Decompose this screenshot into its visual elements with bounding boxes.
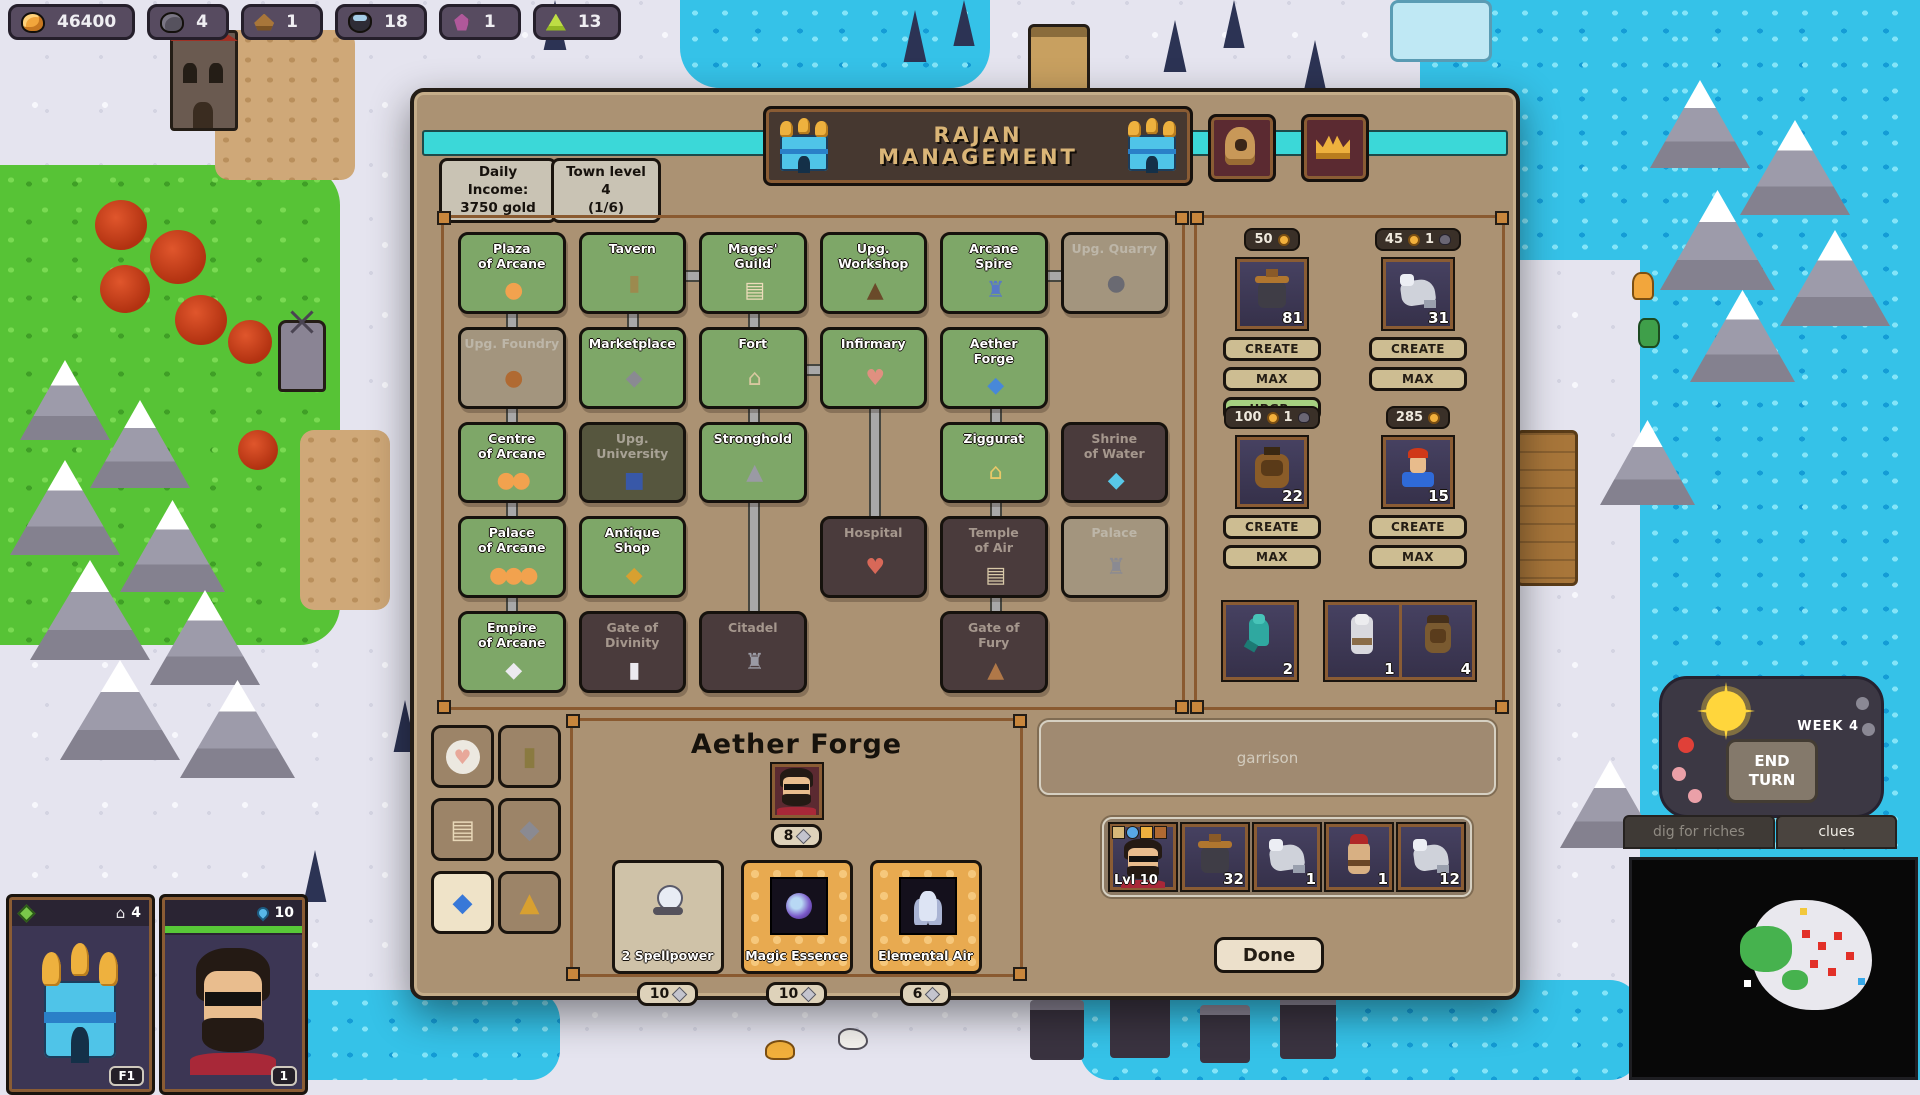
ziggurat-icon: ⌂ (989, 446, 999, 501)
hero-portrait (772, 764, 822, 818)
wood-icon (254, 14, 274, 31)
mages-guild-icon: ▤ (744, 271, 761, 311)
unit-portrait[interactable]: 81 (1235, 257, 1309, 331)
army-slot[interactable]: 1 (1252, 822, 1322, 892)
resource-mercury: 18 (335, 4, 427, 40)
building-detail-section: Aether Forge 8 2 Spellpower (570, 718, 1023, 977)
building-tile-palace-of-arcane[interactable]: Palace of Arcane ●●● (458, 516, 566, 598)
stronghold-icon: ▲ (746, 446, 759, 501)
hero-army-row: Lvl 10 32 1 1 12 (1102, 817, 1472, 897)
minimap-marker-yellow (1800, 908, 1807, 915)
building-tile-plaza-of-arcane[interactable]: Plaza of Arcane ● (458, 232, 566, 314)
minimap-grass (1740, 926, 1792, 972)
recruitment-section: 50 81 CREATE MAX UPGR. 45 1 31 CREATE MA… (1194, 215, 1505, 710)
gems-amount: 13 (578, 12, 602, 32)
magic-essence-icon (770, 877, 828, 935)
reserve-slot[interactable]: 1 (1325, 602, 1402, 680)
autumn-tree (238, 430, 278, 470)
town-count: 4 (131, 905, 141, 921)
building-tile-fort[interactable]: Fort ⌂ (699, 327, 807, 409)
mercury-amount: 18 (384, 12, 408, 32)
army-slot[interactable]: 12 (1396, 822, 1466, 892)
resource-bar: 46400 4 1 18 1 13 (8, 4, 621, 40)
building-tile-upg-quarry[interactable]: Upg. Quarry ● (1061, 232, 1169, 314)
town-portrait (37, 945, 123, 1065)
quarry-icon: ● (1107, 256, 1122, 311)
minimap-marker-blue (1858, 978, 1865, 985)
week-label: WEEK 4 (1797, 719, 1859, 734)
crystal-amount: 1 (484, 12, 496, 32)
ore-mini-icon (1439, 234, 1451, 245)
temple-of-air-icon: ▤ (985, 555, 1002, 595)
stone-tower (1028, 24, 1090, 98)
movement-bar (165, 926, 302, 935)
palace-icon: ♜ (1106, 540, 1122, 595)
building-tile-shrine-of-water[interactable]: Shrine of Water ◆ (1061, 422, 1169, 504)
ore-mini-icon (1298, 412, 1310, 423)
wood-amount: 1 (286, 12, 298, 32)
minimap-enemy-dot (1834, 932, 1842, 940)
building-tile-upg-foundry[interactable]: Upg. Foundry ● (458, 327, 566, 409)
forge-item-spellpower[interactable]: 2 Spellpower (612, 860, 724, 974)
village-house (1030, 1000, 1084, 1060)
plaza-of-arcane-icon: ● (504, 271, 519, 311)
recruit-card-wolf: 45 1 31 CREATE MAX (1359, 228, 1477, 391)
recruit-cost: 50 (1244, 228, 1299, 251)
empire-of-arcane-icon: ◆ (505, 650, 518, 690)
scales-icon: ◆ (520, 815, 540, 845)
village-house (1110, 990, 1170, 1058)
gem-icon (17, 904, 35, 922)
gold-pile (765, 1040, 795, 1060)
end-turn-button[interactable]: END TURN (1726, 739, 1818, 803)
building-tile-palace[interactable]: Palace ♜ (1061, 516, 1169, 598)
foundry-icon: ● (504, 351, 519, 406)
bandit-unit-icon (1249, 267, 1295, 313)
hero-level: Lvl 10 (1114, 873, 1158, 888)
chest-icon (1154, 826, 1167, 839)
building-tile-arcane-spire[interactable]: Arcane Spire ♜ (940, 232, 1048, 314)
golem-unit-icon (1249, 445, 1295, 491)
minimap-marker-white (1744, 980, 1751, 987)
hero-badge: 1 (271, 1066, 297, 1086)
building-tile-aether-forge[interactable]: Aether Forge ◆ (940, 327, 1048, 409)
building-tile-hospital[interactable]: Hospital ♥ (820, 516, 928, 598)
wolf-unit-icon (1395, 267, 1441, 313)
elemental-air-icon (899, 877, 957, 935)
tavern-button[interactable]: ▮ (498, 725, 561, 788)
fountain-icon: ◆ (453, 888, 473, 918)
building-tile-upg-workshop[interactable]: Upg. Workshop ▲ (820, 232, 928, 314)
building-tile-antique-shop[interactable]: Antique Shop ◆ (579, 516, 687, 598)
ore-amount: 4 (196, 12, 208, 32)
brute-unit-icon (1336, 832, 1382, 878)
minimap-enemy-dot (1828, 968, 1836, 976)
helmet-icon: ▲ (520, 888, 540, 918)
town-panel-header: ⌂ 4 (12, 900, 149, 926)
dialog-title-banner: RAJAN MANAGEMENT (763, 106, 1193, 186)
building-tile-upg-university[interactable]: Upg. University ■ (579, 422, 687, 504)
building-tile-mages-guild[interactable]: Mages' Guild ▤ (699, 232, 807, 314)
hospital-icon: ♥ (865, 540, 881, 595)
recruit-card-golem: 100 1 22 CREATE MAX (1213, 406, 1331, 569)
autumn-tree (228, 320, 272, 364)
village-house (1200, 1005, 1250, 1063)
npc-green (1638, 318, 1660, 348)
pine-tree (1220, 0, 1248, 48)
dial-dot (1862, 723, 1875, 736)
ore-icon (160, 12, 184, 33)
forge-item-magic-essence[interactable]: Magic Essence (741, 860, 853, 974)
hero-portrait (184, 945, 282, 1075)
autumn-tree (100, 265, 150, 313)
beast-unit-icon (1415, 612, 1461, 658)
garrison-panel: garrison (1039, 720, 1496, 795)
town-panel[interactable]: ⌂ 4 F1 (6, 894, 155, 1095)
reserve-slot[interactable]: 2 (1221, 600, 1299, 682)
mug-icon: ▮ (522, 742, 536, 772)
building-tile-ziggurat[interactable]: Ziggurat ⌂ (940, 422, 1048, 504)
building-tile-gate-of-divinity[interactable]: Gate of Divinity ▮ (579, 611, 687, 693)
day-dot-red (1678, 737, 1694, 753)
pine-tree (1160, 20, 1190, 72)
tavern-icon: ▮ (628, 256, 636, 311)
essence-icon (925, 986, 941, 1002)
book-icon: ▤ (450, 815, 475, 845)
hero-portrait-button[interactable] (1208, 114, 1276, 182)
pine-tree (1300, 40, 1330, 92)
essence-icon (801, 986, 817, 1002)
arcane-spire-icon: ♜ (986, 271, 1002, 311)
fort-icon: ⌂ (748, 351, 758, 406)
mages-guild-button[interactable]: ▤ (431, 798, 494, 861)
recruit-cost: 285 (1386, 406, 1450, 429)
done-button[interactable]: Done (1214, 937, 1324, 973)
infirmary-icon: ♥ (865, 351, 881, 406)
kingdom-crown-button[interactable] (1301, 114, 1369, 182)
infirmary-button[interactable]: ♥ (431, 725, 494, 788)
create-button[interactable]: CREATE (1369, 337, 1467, 361)
university-icon: ■ (624, 461, 641, 501)
village-house (1280, 995, 1336, 1059)
gold-coin-icon (1267, 412, 1279, 424)
dialog-title: RAJAN MANAGEMENT (832, 124, 1124, 168)
crystal-icon (452, 14, 472, 31)
gold-coin-icon (1278, 234, 1290, 246)
building-tile-temple-of-air[interactable]: Temple of Air ▤ (940, 516, 1048, 598)
building-grid-section: Plaza of Arcane ● Tavern ▮ Mages' Guild … (441, 215, 1185, 710)
recruit-cost: 45 1 (1375, 228, 1461, 251)
recruit-cost: 100 1 (1224, 406, 1319, 429)
shrine-of-water-icon: ◆ (1108, 461, 1121, 501)
town-management-dialog: RAJAN MANAGEMENT Daily Income: 3750 gold… (410, 88, 1520, 1000)
resource-wood: 1 (241, 4, 323, 40)
minimap[interactable] (1629, 857, 1918, 1080)
create-button[interactable]: CREATE (1223, 337, 1321, 361)
hero-cost-badge: 8 (771, 824, 823, 848)
autumn-tree (175, 295, 227, 345)
unit-portrait[interactable]: 22 (1235, 435, 1309, 509)
gate-of-divinity-icon: ▮ (628, 650, 636, 690)
essence-icon (796, 828, 812, 844)
minimap-grass (1782, 970, 1808, 990)
dock (1516, 430, 1578, 586)
dig-for-riches-button[interactable]: dig for riches (1623, 815, 1775, 849)
max-button[interactable]: MAX (1369, 545, 1467, 569)
minimap-enemy-dot (1818, 942, 1826, 950)
building-tile-centre-of-arcane[interactable]: Centre of Arcane ●● (458, 422, 566, 504)
crown-icon (1140, 826, 1153, 839)
lake-top (680, 0, 990, 88)
ice-ruin (1390, 0, 1492, 62)
building-tile-stronghold[interactable]: Stronghold ▲ (699, 422, 807, 504)
castle-icon (1124, 118, 1180, 174)
minimap-enemy-dot (1846, 952, 1854, 960)
item-cost-badge: 10 (766, 982, 827, 1006)
map-castle (170, 30, 238, 131)
goat (838, 1028, 868, 1050)
house-icon: ⌂ (116, 906, 126, 921)
dial-dot (1856, 697, 1869, 710)
workshop-icon: ▲ (867, 271, 880, 311)
mountain (180, 680, 295, 778)
building-tile-infirmary[interactable]: Infirmary ♥ (820, 327, 928, 409)
reserve-slot-pair[interactable]: 1 4 (1323, 600, 1477, 682)
marketplace-button[interactable]: ◆ (498, 798, 561, 861)
gold-coin-icon (1428, 412, 1440, 424)
hero-movement-count: 10 (275, 905, 294, 921)
army-slot[interactable]: 1 (1324, 822, 1394, 892)
reserve-slot[interactable]: 4 (1402, 602, 1476, 680)
spellpower-orb-icon (653, 885, 683, 915)
max-button[interactable]: MAX (1223, 545, 1321, 569)
gate-of-fury-icon: ▲ (987, 650, 1000, 690)
day-dot-pink (1688, 789, 1702, 803)
crown-icon (1316, 133, 1350, 159)
antique-shop-button[interactable]: ▲ (498, 871, 561, 934)
building-tile-marketplace[interactable]: Marketplace ◆ (579, 327, 687, 409)
item-cost-badge: 6 (900, 982, 952, 1006)
hero-panel[interactable]: 10 1 (159, 894, 308, 1095)
town-hotkey-badge: F1 (109, 1066, 144, 1086)
palace-of-arcane-icon: ●●● (489, 555, 535, 595)
army-hero-slot[interactable]: Lvl 10 (1108, 822, 1178, 892)
building-tile-empire-of-arcane[interactable]: Empire of Arcane ◆ (458, 611, 566, 693)
resource-gold: 46400 (8, 4, 135, 40)
turn-panel: WEEK 4 END TURN (1659, 676, 1884, 818)
resource-ore: 4 (147, 4, 229, 40)
unit-portrait[interactable]: 31 (1381, 257, 1455, 331)
garrison-label: garrison (1237, 749, 1298, 767)
essence-icon (672, 986, 688, 1002)
day-dot-pink (1672, 767, 1686, 781)
autumn-tree (150, 230, 206, 284)
recruit-card-bandit: 50 81 CREATE MAX UPGR. (1213, 228, 1331, 421)
autumn-tree (95, 200, 147, 250)
gems-icon (546, 14, 566, 31)
recruit-card-mage: 285 15 CREATE MAX (1359, 406, 1477, 569)
army-slot[interactable]: 32 (1180, 822, 1250, 892)
aether-forge-icon: ◆ (987, 366, 1000, 406)
gold-icon (21, 12, 45, 33)
citadel-icon: ♜ (745, 635, 761, 690)
orb-icon (1126, 826, 1139, 839)
building-tile-gate-of-fury[interactable]: Gate of Fury ▲ (940, 611, 1048, 693)
max-button[interactable]: MAX (1223, 367, 1321, 391)
giant-unit-icon (1339, 612, 1385, 658)
centre-of-arcane-icon: ●● (497, 461, 527, 501)
npc-orange (1632, 272, 1654, 300)
create-button[interactable]: CREATE (1369, 515, 1467, 539)
water-drop-icon (254, 905, 271, 922)
lizard-unit-icon (1237, 610, 1283, 656)
resource-crystal: 1 (439, 4, 521, 40)
unit-portrait[interactable]: 15 (1381, 435, 1455, 509)
resource-gems: 13 (533, 4, 621, 40)
building-tile-citadel[interactable]: Citadel ♜ (699, 611, 807, 693)
wolf-unit-icon (1264, 832, 1310, 878)
mercury-icon (348, 12, 372, 33)
building-tile-tavern[interactable]: Tavern ▮ (579, 232, 687, 314)
forge-item-elemental-air[interactable]: Elemental Air (870, 860, 982, 974)
gauntlet-icon (1112, 826, 1125, 839)
aether-forge-button[interactable]: ◆ (431, 871, 494, 934)
mage-unit-icon (1395, 445, 1441, 491)
gold-amount: 46400 (57, 12, 116, 32)
daily-income-box: Daily Income: 3750 gold (439, 158, 557, 223)
hero-panel-header: 10 (165, 900, 302, 926)
minimap-enemy-dot (1802, 930, 1810, 938)
castle-icon (776, 118, 832, 174)
gold-coin-icon (1408, 234, 1420, 246)
sun-icon (1706, 691, 1746, 731)
dirt-path (300, 430, 390, 610)
minimap-enemy-dot (1810, 960, 1818, 968)
marketplace-icon: ◆ (626, 351, 639, 406)
item-cost-badge: 10 (637, 982, 698, 1006)
town-level-box: Town level 4 (1/6) (551, 158, 661, 223)
max-button[interactable]: MAX (1369, 367, 1467, 391)
clues-button[interactable]: clues (1776, 815, 1897, 849)
antique-shop-icon: ◆ (626, 555, 639, 595)
windmill (278, 320, 326, 392)
create-button[interactable]: CREATE (1223, 515, 1321, 539)
heart-icon: ♥ (446, 740, 480, 774)
built-structures-buttons: ♥ ▮ ▤ ◆ ◆ ▲ (431, 725, 555, 934)
hero-skill-icons (1112, 826, 1167, 839)
detail-title: Aether Forge (573, 729, 1020, 760)
